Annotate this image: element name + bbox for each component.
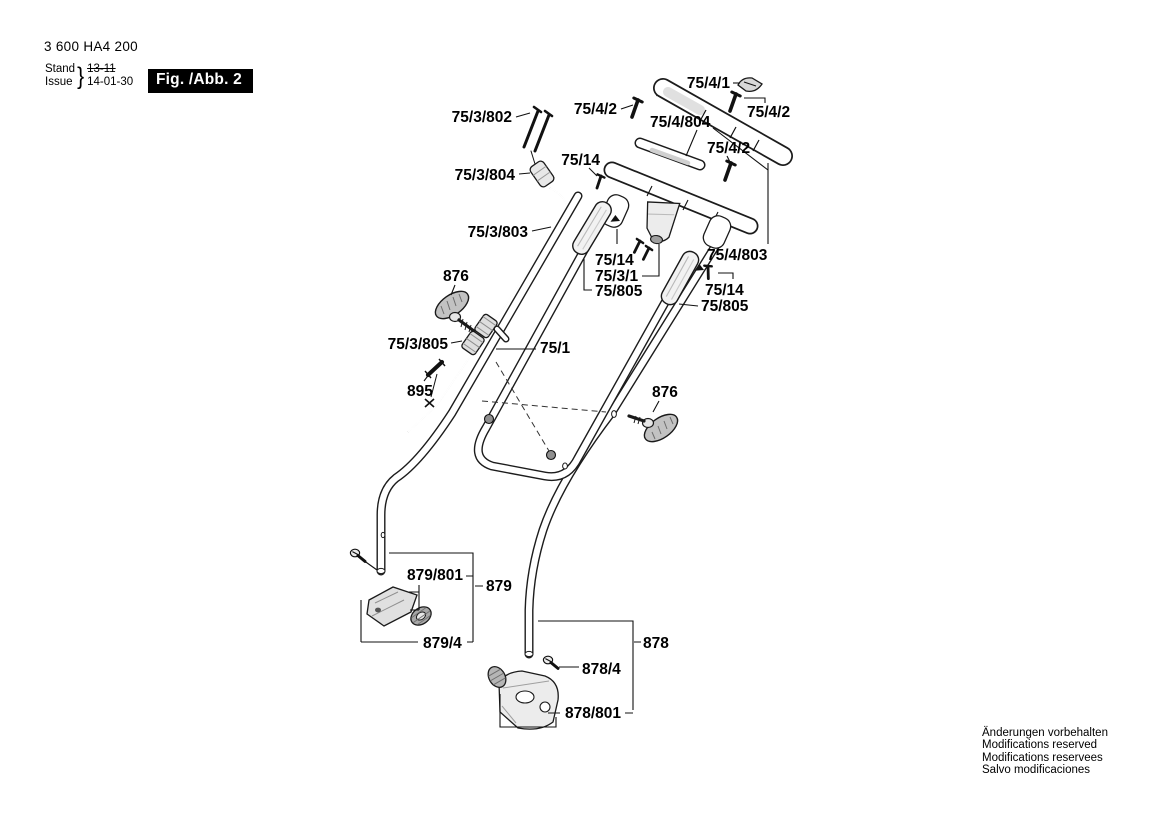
part-label: 75/3/804: [455, 167, 516, 184]
part-labels: 75/3/802 75/4/2 75/4/1 75/4/2 75/4/804 7…: [388, 75, 790, 722]
upper-handle-tube-75-1: [478, 214, 672, 477]
screw-75-4-2: [730, 92, 740, 111]
notice-line-es: Salvo modificaciones: [982, 764, 1108, 776]
part-label: 75/3/802: [452, 109, 512, 126]
part-label: 75/14: [595, 252, 634, 269]
notice-line-de: Änderungen vorbehalten: [982, 727, 1108, 739]
switch-lever-75-4-804: [640, 143, 700, 165]
part-label: 878: [643, 635, 669, 652]
screw-75-14: [597, 174, 604, 188]
notice-line-en: Modifications reserved: [982, 739, 1108, 751]
part-label: 75/3/803: [468, 224, 529, 241]
parts-figure-page: 3 600 HA4 200 Stand Issue } 13-11 14-01-…: [0, 0, 1169, 826]
cap-piece-75-4-1: [738, 78, 762, 91]
part-label: 75/4/2: [574, 101, 617, 118]
part-label: 878/801: [565, 705, 621, 722]
cable-guide-879-801: [367, 587, 435, 629]
part-label: 75/1: [540, 340, 571, 357]
part-label: 876: [443, 268, 469, 285]
screw-75-4-2: [725, 161, 735, 180]
exploded-diagram: 75/3/802 75/4/2 75/4/1 75/4/2 75/4/804 7…: [0, 0, 1169, 826]
cable-fix-point-mark: [425, 399, 434, 407]
legal-notices: Änderungen vorbehalten Modifications res…: [982, 727, 1108, 777]
part-label: 75/805: [701, 298, 749, 315]
part-label: 75/14: [561, 152, 600, 169]
part-label: 75/4/804: [650, 114, 711, 131]
part-label: 879/801: [407, 567, 463, 584]
part-label: 75/4/803: [707, 247, 768, 264]
tube-hole: [612, 411, 617, 418]
tube-end-opening: [377, 568, 385, 573]
tube-hole: [563, 463, 568, 469]
notice-line-fr: Modifications reservees: [982, 752, 1108, 764]
screw-75-4-2: [632, 98, 642, 117]
part-label: 75/4/1: [687, 75, 730, 92]
screw-879: [350, 549, 365, 561]
part-label: 879: [486, 578, 512, 595]
tube-end-opening: [525, 651, 533, 656]
part-label: 876: [652, 384, 678, 401]
part-label: 878/4: [582, 661, 621, 678]
part-label: 895: [407, 383, 433, 400]
foot-piece-878-801: [485, 663, 559, 729]
wing-knob-876-right: [629, 409, 682, 447]
carriage-bolt: [485, 415, 494, 424]
part-label: 75/14: [705, 282, 744, 299]
screw-878-4: [543, 656, 558, 668]
part-label: 75/4/2: [707, 140, 750, 157]
screw-75-14: [634, 239, 643, 253]
tube-hole: [381, 532, 385, 537]
part-label: 75/805: [595, 283, 643, 300]
clamp-75-3-804: [529, 160, 556, 189]
screw-75-14: [643, 246, 652, 260]
screw-75-14: [704, 263, 716, 278]
carriage-bolt: [547, 451, 556, 460]
part-label: 75/4/2: [747, 104, 790, 121]
part-label: 75/3/805: [388, 336, 449, 353]
part-label: 879/4: [423, 635, 462, 652]
funnel-sleeve-75-3-1: [642, 199, 680, 246]
pins-75-3-802: [524, 107, 552, 164]
